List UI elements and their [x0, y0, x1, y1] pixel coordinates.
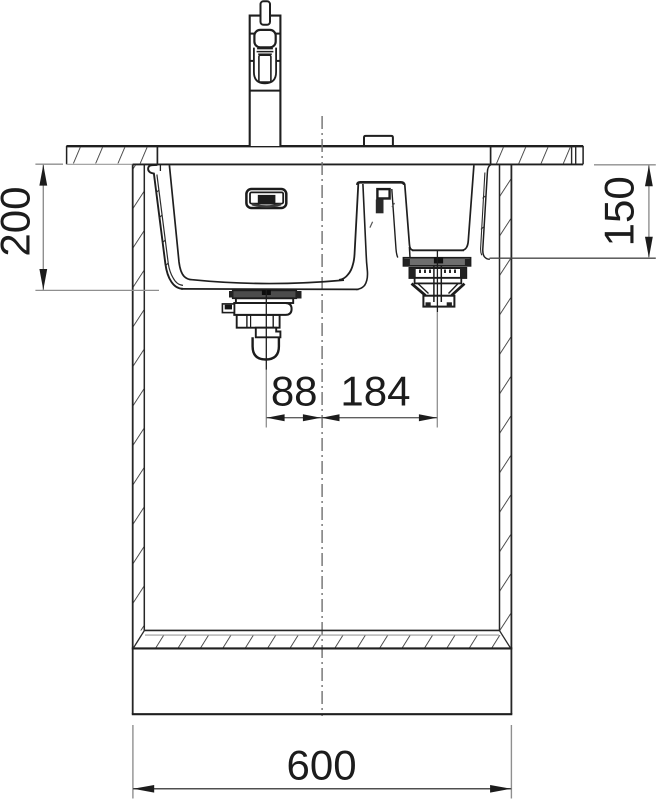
- svg-text:600: 600: [287, 741, 357, 788]
- svg-text:150: 150: [596, 176, 643, 246]
- svg-text:200: 200: [0, 187, 38, 257]
- svg-text:184: 184: [340, 367, 410, 414]
- svg-text:88: 88: [271, 367, 318, 414]
